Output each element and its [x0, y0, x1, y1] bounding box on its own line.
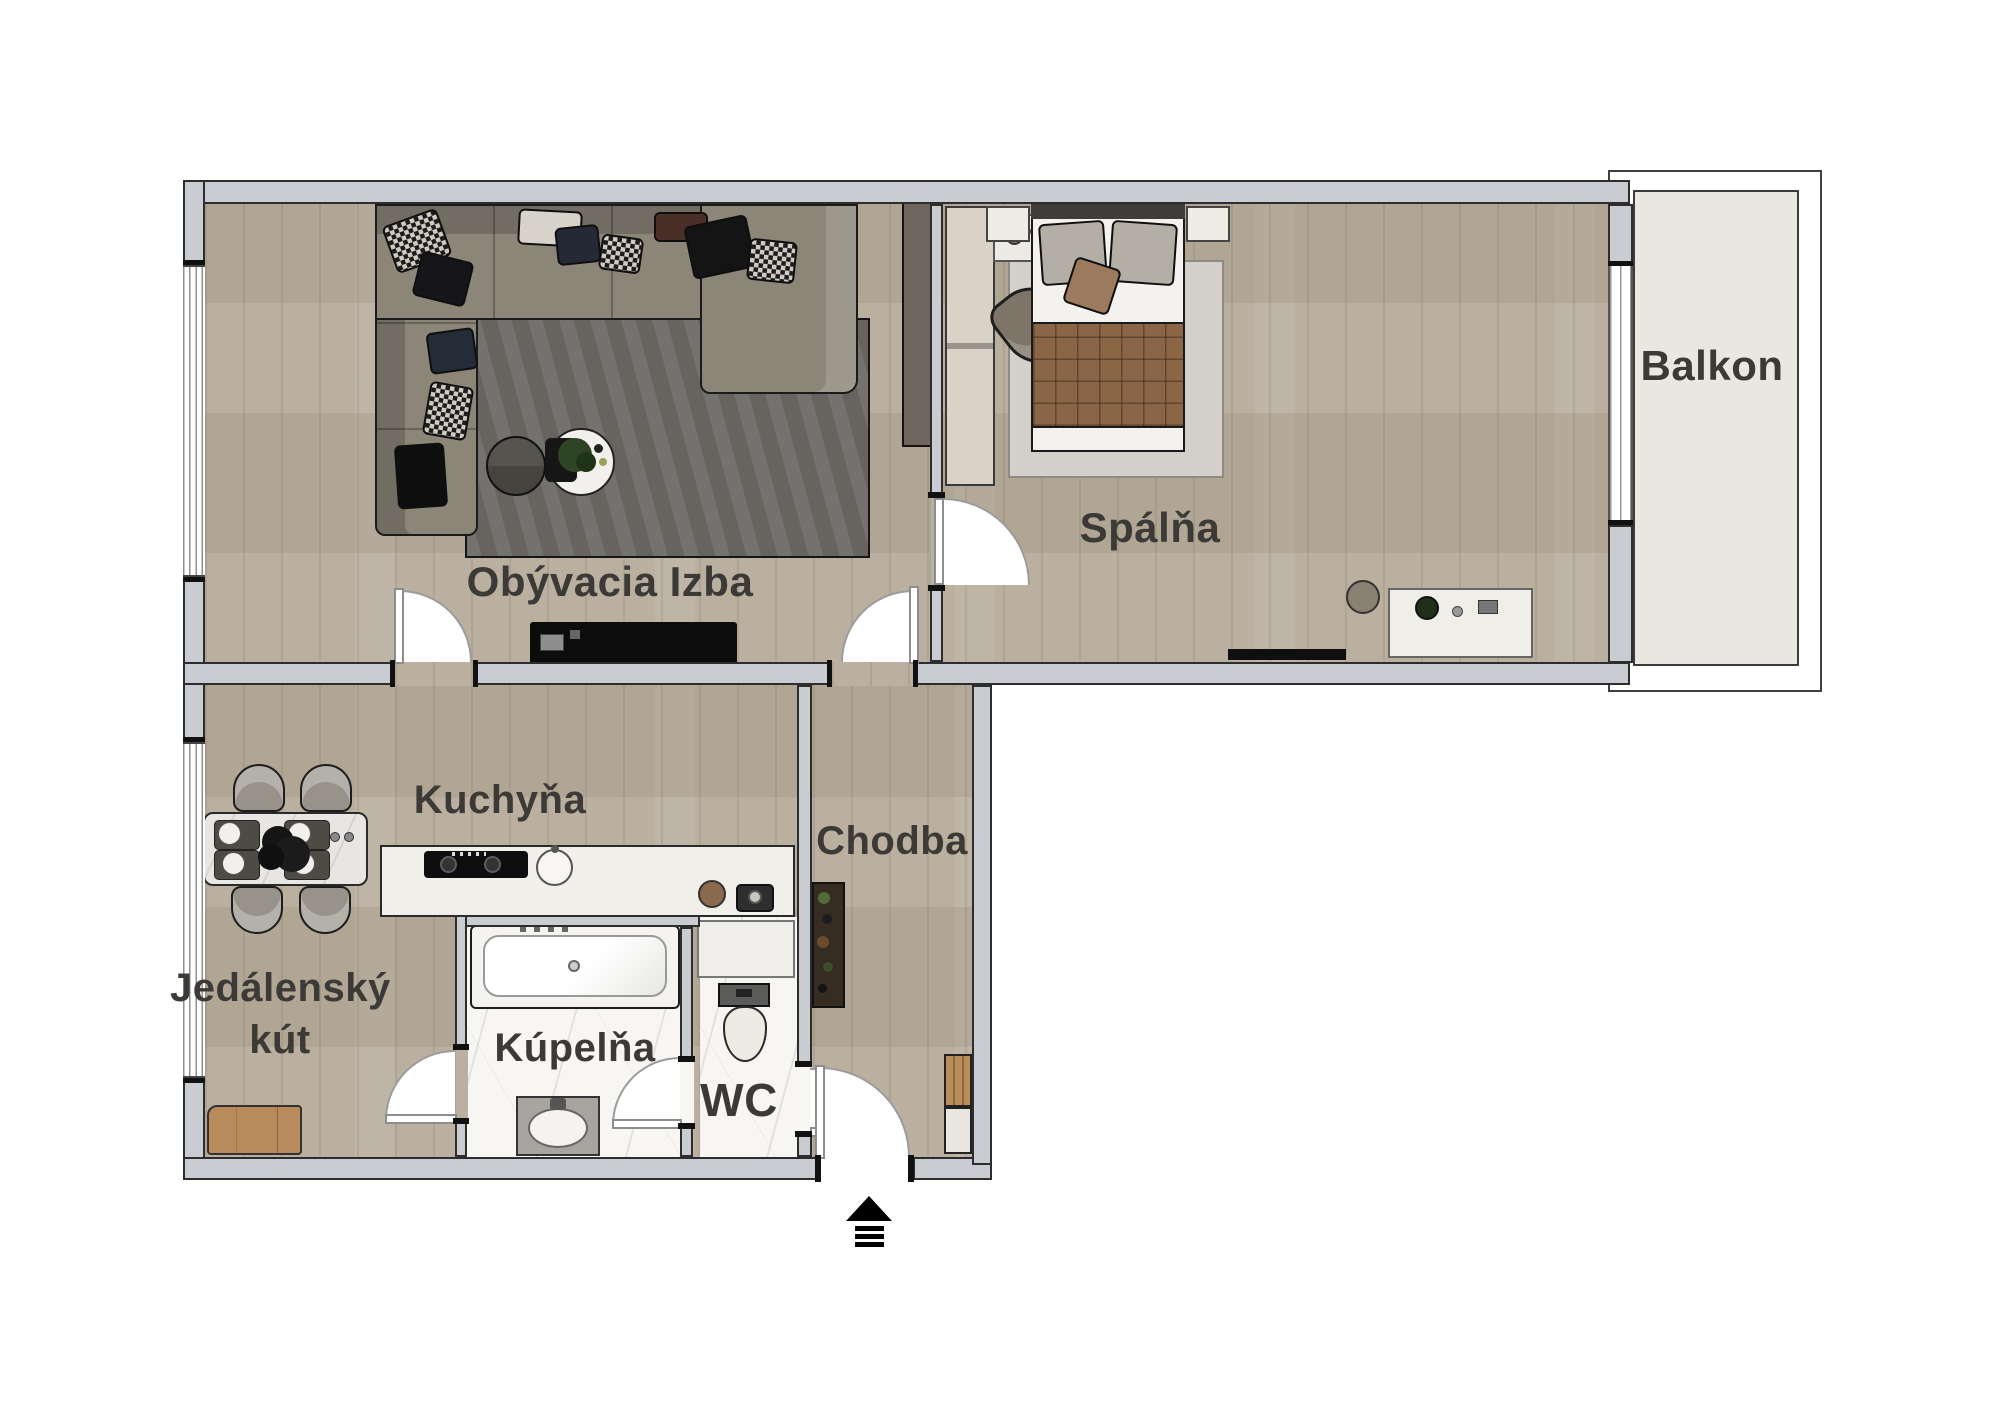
door-jamb	[453, 1118, 469, 1124]
window-jamb	[183, 260, 205, 265]
wall-right-lower-block	[972, 685, 992, 1165]
toilet-flush	[736, 989, 752, 997]
door-jamb	[827, 660, 832, 687]
wall-mid-horizontal	[183, 662, 395, 685]
room-label-dining-line1: Jedálenský	[170, 966, 390, 1011]
wardrobe-bedroom	[945, 206, 995, 486]
wall-living-bedroom-stub	[930, 585, 943, 662]
coffee-table-dark	[486, 436, 546, 496]
door-jamb	[453, 1044, 469, 1050]
wall-bathroom-wc	[680, 927, 693, 1062]
plant-on-table	[576, 452, 596, 472]
door-leaf	[909, 586, 919, 664]
window-jamb	[1608, 261, 1633, 266]
wall-bathroom-top	[455, 915, 700, 927]
bed-blanket	[1031, 322, 1185, 428]
hall-shelf-plant	[818, 892, 830, 904]
door-jamb	[928, 492, 945, 498]
door-jamb	[390, 660, 395, 687]
hall-cabinet-white	[944, 1107, 972, 1154]
door-opening	[832, 662, 915, 686]
desk	[1388, 588, 1533, 658]
wall-bathroom-left-stub	[455, 1120, 467, 1157]
wall-mid-horizontal	[473, 662, 832, 685]
bath-sink-faucet	[550, 1098, 566, 1110]
bed-headboard	[1031, 204, 1185, 219]
sofa-pillow	[394, 442, 448, 509]
door-jamb	[795, 1061, 812, 1067]
room-label-kitchen: Kuchyňa	[400, 778, 600, 823]
wall-balcony-stub-bottom	[1608, 525, 1633, 663]
dining-chair	[233, 764, 285, 812]
dining-chair	[300, 764, 352, 812]
tv-remote	[540, 634, 564, 651]
entry-cabinet-wood	[207, 1105, 302, 1155]
balcony-door-glazing-icon	[1608, 265, 1633, 525]
room-label-dining-line2: kút	[170, 1018, 390, 1063]
sofa-pillow	[598, 233, 645, 274]
plate	[222, 852, 245, 875]
door-opening	[395, 662, 475, 686]
wall-mid-horizontal	[915, 662, 1630, 685]
door-opening	[454, 1050, 468, 1120]
door-leaf	[385, 1114, 457, 1124]
sofa-pillow	[554, 224, 602, 266]
sofa-pillow	[422, 381, 475, 442]
room-label-balcony: Balkon	[1612, 342, 1812, 390]
room-label-wc: WC	[689, 1073, 789, 1127]
table-flower	[594, 444, 603, 453]
window-jamb	[183, 577, 205, 582]
wall-top	[183, 180, 1630, 204]
door-leaf	[612, 1119, 682, 1129]
bath-sink	[528, 1108, 588, 1148]
hall-shelf-item	[818, 984, 827, 993]
balcony-floor	[1633, 190, 1799, 666]
table-knob	[330, 832, 340, 842]
hall-shelf-plant	[823, 962, 833, 972]
desk-stool	[1346, 580, 1380, 614]
wall-bottom	[183, 1157, 820, 1180]
stove-knobs	[452, 852, 486, 856]
desk-plant	[1415, 596, 1439, 620]
radiator	[1228, 649, 1346, 660]
room-label-bathroom: Kúpelňa	[475, 1026, 675, 1071]
tv-item	[570, 630, 580, 639]
door-leaf	[394, 588, 404, 664]
stove-burner	[440, 856, 457, 873]
wc-shelf-unit	[697, 920, 795, 978]
door-jamb	[473, 660, 478, 687]
sofa-pillow	[746, 238, 798, 285]
window-jamb	[183, 737, 205, 742]
desk-item	[1452, 606, 1463, 617]
window-jamb	[183, 1078, 205, 1083]
table-knob	[344, 832, 354, 842]
wall-bathroom-left	[455, 915, 467, 1050]
table-flower	[599, 458, 607, 466]
wall-living-bedroom	[930, 204, 943, 498]
entrance-door-leaf	[815, 1065, 825, 1159]
door-jamb	[795, 1131, 812, 1137]
room-label-living: Obývacia Izba	[410, 558, 810, 606]
room-label-bedroom: Spálňa	[1050, 504, 1250, 552]
hall-shelf-item	[817, 936, 829, 948]
room-label-hallway: Chodba	[792, 819, 992, 864]
sofa-pillow	[425, 327, 478, 375]
entrance-arrow-icon	[846, 1196, 892, 1221]
window-living-icon	[183, 265, 205, 577]
entrance-arrow-bar	[855, 1242, 884, 1247]
door-jamb	[678, 1056, 695, 1062]
desk-item	[1478, 600, 1498, 614]
sink-faucet	[551, 845, 559, 853]
centerpiece	[258, 844, 284, 870]
stove-burner	[484, 856, 501, 873]
nightstand-right	[1186, 206, 1230, 242]
window-jamb	[1608, 520, 1633, 525]
wall-bathroom-wc-stub	[680, 1125, 693, 1157]
kitchen-sink	[536, 849, 573, 886]
tall-cabinet-living	[902, 202, 933, 447]
door-jamb	[928, 585, 945, 591]
hall-cabinet-wood	[944, 1054, 972, 1107]
plate	[218, 822, 241, 845]
wall-balcony-stub-top	[1608, 204, 1633, 265]
hall-shelf-item	[822, 914, 832, 924]
door-jamb	[913, 660, 918, 687]
door-jamb	[908, 1155, 914, 1182]
entrance-arrow-bar	[855, 1226, 884, 1231]
coffee-machine	[698, 880, 726, 908]
nightstand-left	[986, 206, 1030, 242]
floor-plan: Obývacia Izba Spálňa Balkon Kuchyňa Chod…	[0, 0, 2000, 1414]
wall-kitchen-hallway	[797, 685, 812, 1067]
kitchen-appliance-dial	[748, 890, 762, 904]
bathtub-drain	[568, 960, 580, 972]
door-jamb	[815, 1155, 821, 1182]
entrance-arrow-bar	[855, 1234, 884, 1239]
door-leaf	[934, 498, 944, 585]
